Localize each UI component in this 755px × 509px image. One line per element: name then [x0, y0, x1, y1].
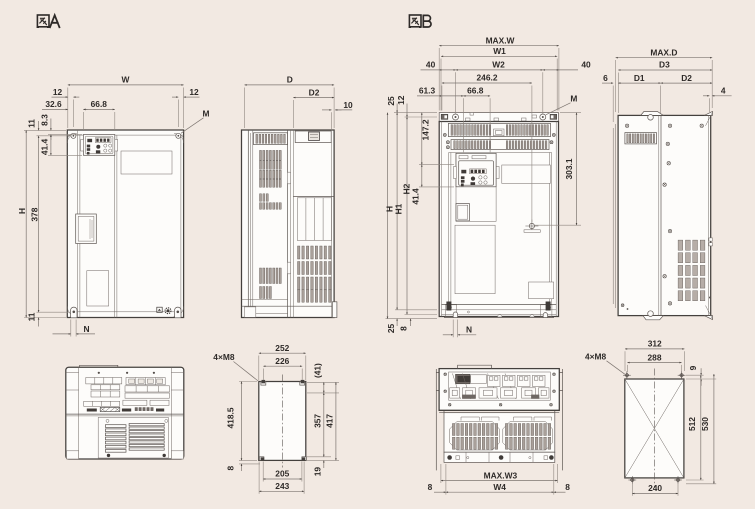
svg-text:D: D — [287, 75, 293, 85]
svg-text:11: 11 — [26, 312, 36, 321]
svg-text:61.3: 61.3 — [419, 86, 436, 96]
svg-text:D1: D1 — [634, 73, 645, 83]
svg-text:MAX.W: MAX.W — [486, 35, 515, 45]
svg-text:D2: D2 — [309, 87, 320, 97]
svg-text:6: 6 — [603, 73, 608, 83]
svg-text:W: W — [122, 75, 130, 85]
svg-text:226: 226 — [275, 356, 289, 366]
svg-text:25: 25 — [386, 96, 396, 106]
svg-text:4×M8: 4×M8 — [213, 352, 235, 362]
svg-text:40: 40 — [581, 60, 591, 70]
svg-text:240: 240 — [648, 483, 662, 493]
svg-text:8: 8 — [565, 482, 570, 492]
svg-text:H1: H1 — [393, 203, 403, 214]
svg-text:MAX.W3: MAX.W3 — [484, 470, 518, 480]
svg-text:W1: W1 — [493, 46, 506, 56]
svg-text:205: 205 — [275, 468, 289, 478]
svg-text:8: 8 — [226, 466, 236, 471]
svg-text:41.4: 41.4 — [410, 188, 420, 205]
svg-text:246.2: 246.2 — [477, 73, 498, 83]
svg-text:10: 10 — [343, 100, 353, 110]
svg-text:9: 9 — [688, 365, 698, 370]
svg-text:H2: H2 — [401, 183, 411, 194]
svg-text:147.2: 147.2 — [421, 119, 431, 140]
svg-text:378: 378 — [29, 207, 39, 221]
svg-text:M: M — [203, 108, 210, 118]
svg-text:12: 12 — [396, 95, 406, 105]
svg-text:4×M8: 4×M8 — [585, 351, 607, 361]
svg-text:40: 40 — [426, 60, 436, 70]
svg-text:243: 243 — [275, 481, 289, 491]
svg-text:N: N — [466, 325, 472, 335]
svg-text:66.8: 66.8 — [467, 86, 484, 96]
svg-text:303.1: 303.1 — [564, 158, 574, 179]
svg-text:4: 4 — [721, 86, 726, 96]
svg-text:D3: D3 — [659, 60, 670, 70]
svg-text:8.3: 8.3 — [40, 114, 50, 126]
svg-text:357: 357 — [312, 414, 322, 428]
svg-text:19: 19 — [312, 467, 322, 477]
svg-text:(41): (41) — [312, 363, 322, 378]
svg-text:530: 530 — [700, 417, 710, 431]
svg-text:12: 12 — [53, 87, 63, 97]
svg-text:D2: D2 — [681, 73, 692, 83]
svg-text:MAX.D: MAX.D — [650, 47, 677, 57]
svg-text:W2: W2 — [492, 60, 505, 70]
svg-text:W4: W4 — [493, 482, 506, 492]
svg-text:H: H — [17, 208, 27, 214]
svg-text:512: 512 — [687, 417, 697, 431]
svg-text:12: 12 — [189, 87, 199, 97]
svg-text:M: M — [570, 94, 577, 104]
svg-text:66.8: 66.8 — [91, 99, 108, 109]
svg-text:N: N — [83, 324, 89, 334]
svg-text:11: 11 — [26, 119, 36, 128]
svg-text:417: 417 — [324, 414, 334, 428]
svg-text:252: 252 — [275, 343, 289, 353]
svg-text:25: 25 — [386, 324, 396, 334]
svg-text:8: 8 — [428, 482, 433, 492]
svg-text:8: 8 — [398, 326, 408, 331]
svg-text:41.4: 41.4 — [40, 139, 50, 156]
svg-text:288: 288 — [648, 352, 662, 362]
svg-text:32.6: 32.6 — [45, 99, 62, 109]
svg-text:418.5: 418.5 — [226, 407, 236, 428]
svg-text:312: 312 — [648, 339, 662, 349]
